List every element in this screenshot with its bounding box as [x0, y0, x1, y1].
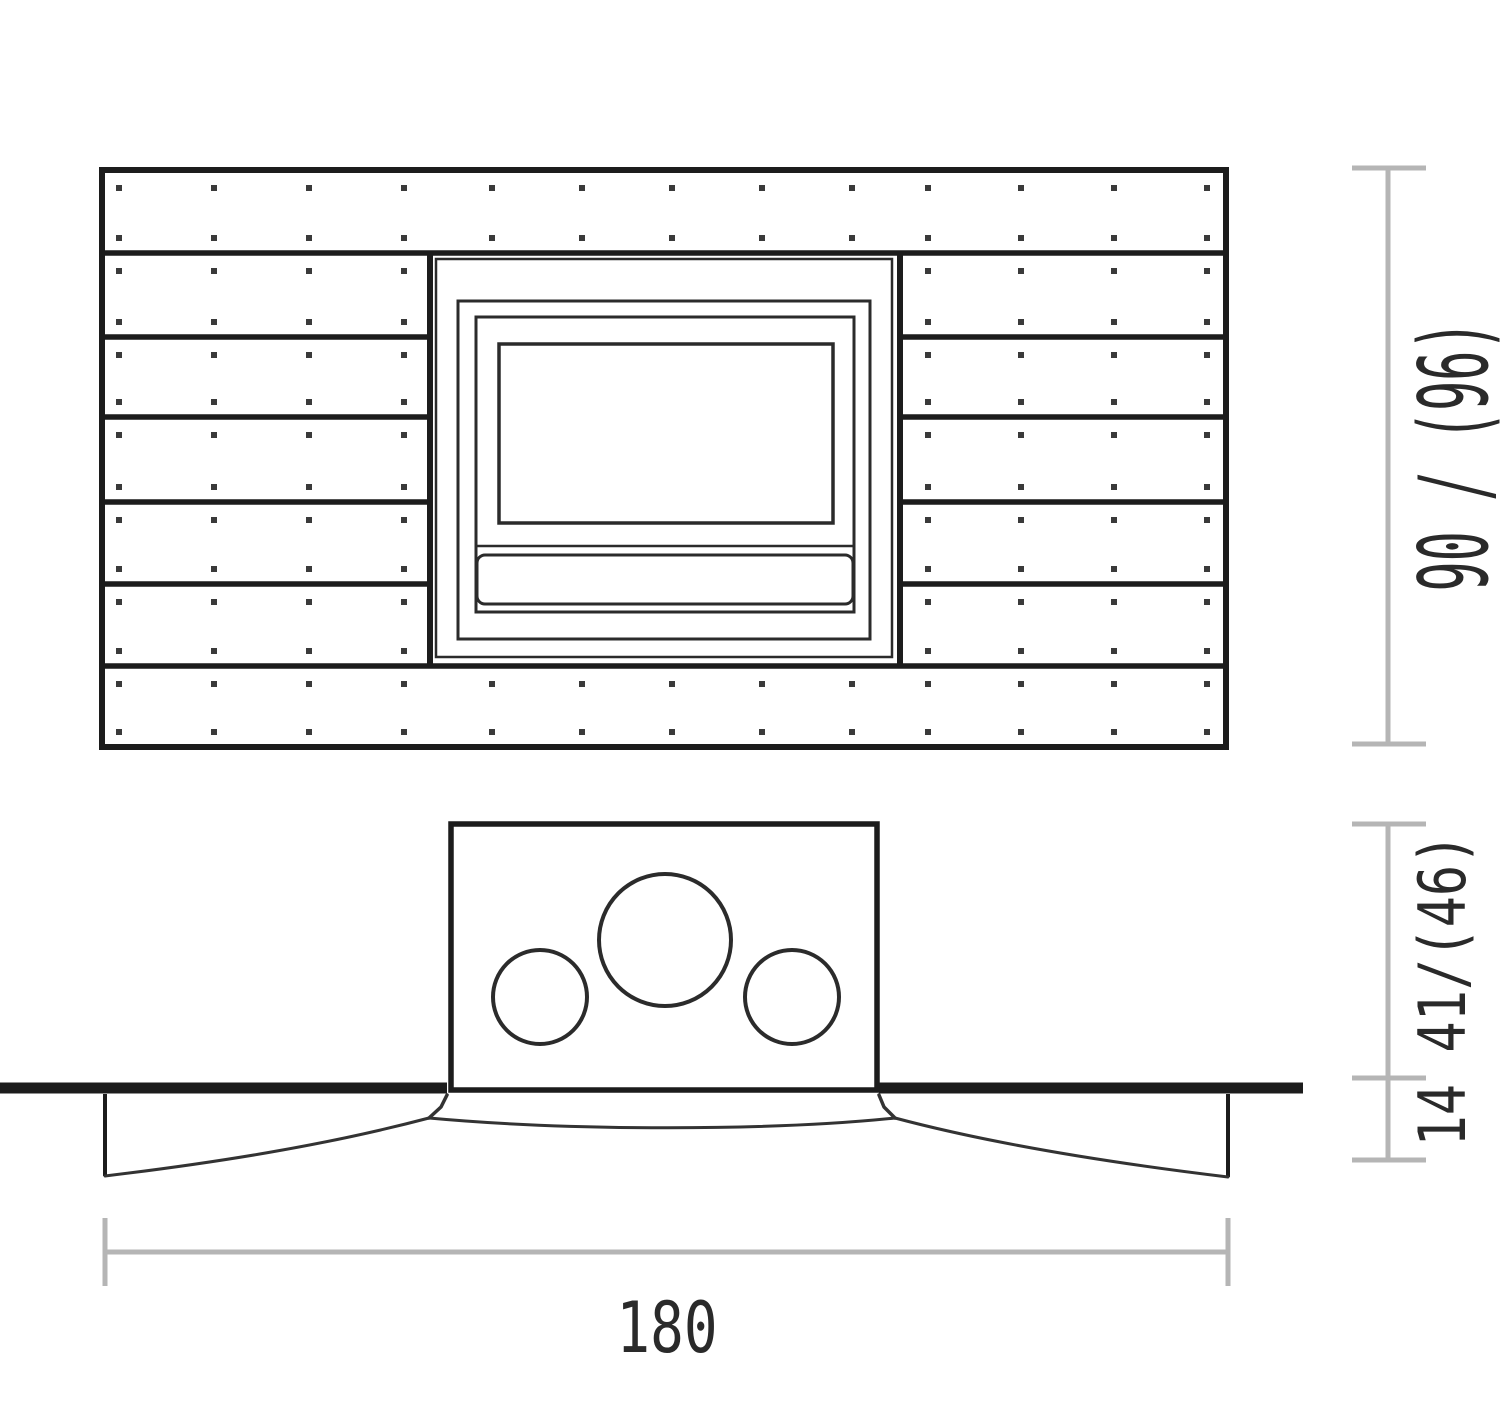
screw-dot [306, 566, 312, 572]
screw-dot [1018, 599, 1024, 605]
screw-dot [489, 235, 495, 241]
insert-inner-frame [476, 317, 854, 612]
curved-front-right [895, 1118, 1228, 1177]
screw-dot [925, 235, 931, 241]
dimension-drawing: 90 / (96) 14 41/(46) 180 [0, 0, 1500, 1427]
screw-dot [116, 352, 122, 358]
screw-dot [759, 185, 765, 191]
screw-dot [306, 432, 312, 438]
screw-dot [401, 729, 407, 735]
screw-dot [401, 648, 407, 654]
screw-dot [1204, 235, 1210, 241]
screw-dot [849, 681, 855, 687]
screw-dot [849, 729, 855, 735]
screw-dot [1111, 319, 1117, 325]
screw-dot [401, 681, 407, 687]
screw-dot [306, 517, 312, 523]
screw-dot [669, 185, 675, 191]
screw-dot [925, 185, 931, 191]
screw-dot [306, 681, 312, 687]
screw-dot [116, 185, 122, 191]
screw-dot [116, 235, 122, 241]
screw-dot [211, 681, 217, 687]
screw-dot [116, 566, 122, 572]
screw-dot [1204, 352, 1210, 358]
screw-dot [116, 399, 122, 405]
screw-dot [211, 319, 217, 325]
screw-dot [306, 648, 312, 654]
screw-dot [211, 729, 217, 735]
screw-dot [211, 399, 217, 405]
screw-dot [925, 681, 931, 687]
screw-dot [925, 352, 931, 358]
screw-dot [925, 432, 931, 438]
screw-dot [849, 185, 855, 191]
screw-dot [306, 235, 312, 241]
curved-front-left [105, 1118, 429, 1176]
screw-dot [1018, 681, 1024, 687]
screw-dot [669, 681, 675, 687]
screw-dot [1111, 648, 1117, 654]
screw-dot [211, 517, 217, 523]
screw-dot [1204, 517, 1210, 523]
screw-dot [401, 319, 407, 325]
screw-dot [1111, 235, 1117, 241]
insert-middle-frame [458, 301, 870, 639]
screw-dot [759, 729, 765, 735]
screw-dot [925, 648, 931, 654]
curved-front-center [429, 1118, 895, 1128]
screw-dot [1018, 517, 1024, 523]
screw-dot [401, 399, 407, 405]
screw-dot [211, 599, 217, 605]
screw-dot [116, 319, 122, 325]
screw-dot [211, 484, 217, 490]
screw-dot [116, 681, 122, 687]
screw-dot [401, 517, 407, 523]
screw-dot [669, 729, 675, 735]
screw-dot [306, 729, 312, 735]
screw-dot [1018, 484, 1024, 490]
screw-dot [849, 235, 855, 241]
screw-dot [1018, 352, 1024, 358]
screw-dot [759, 681, 765, 687]
screw-dot [1018, 319, 1024, 325]
screw-dot [1018, 729, 1024, 735]
screw-dot [211, 648, 217, 654]
screw-dot [1111, 599, 1117, 605]
screw-dot [116, 517, 122, 523]
screw-dot [116, 484, 122, 490]
screw-dot [489, 729, 495, 735]
screw-dot [211, 235, 217, 241]
screw-dot [211, 352, 217, 358]
screw-dot [306, 599, 312, 605]
screw-dot [211, 268, 217, 274]
screw-dot [1111, 484, 1117, 490]
screw-dot [1111, 566, 1117, 572]
screw-dot [1018, 185, 1024, 191]
screw-dot [1204, 566, 1210, 572]
screw-dot [1018, 648, 1024, 654]
screw-dot [925, 566, 931, 572]
screw-dot [306, 484, 312, 490]
screw-dot [1204, 399, 1210, 405]
screw-dot [759, 235, 765, 241]
screw-dot [116, 268, 122, 274]
depth-dimension-label: 14 41/(46) [1404, 833, 1480, 1146]
screw-dot [1111, 352, 1117, 358]
screw-dot [925, 517, 931, 523]
plan-view [0, 824, 1303, 1177]
screw-dot [1018, 399, 1024, 405]
screw-dot [116, 599, 122, 605]
screw-dot [669, 235, 675, 241]
screw-dot [306, 319, 312, 325]
screw-dot [1204, 432, 1210, 438]
screw-dot [1204, 484, 1210, 490]
screw-dot [306, 185, 312, 191]
screw-dot [211, 185, 217, 191]
technical-drawing-canvas: 90 / (96) 14 41/(46) 180 [0, 0, 1500, 1427]
screw-dot [1204, 681, 1210, 687]
height-dimension-label: 90 / (96) [1399, 321, 1500, 592]
screw-dot [116, 729, 122, 735]
screw-dot [1111, 268, 1117, 274]
screw-dot [401, 566, 407, 572]
screw-dot [1204, 599, 1210, 605]
curve-joint-mark-right [879, 1095, 895, 1118]
screw-dot [1111, 185, 1117, 191]
screw-dot [401, 185, 407, 191]
screw-dot [306, 352, 312, 358]
screw-dot [1111, 517, 1117, 523]
screw-dot [401, 268, 407, 274]
screw-dot [489, 681, 495, 687]
screw-dot [401, 432, 407, 438]
screw-dot [925, 729, 931, 735]
screw-dot [1204, 729, 1210, 735]
screw-dot [401, 235, 407, 241]
screw-dot [1018, 268, 1024, 274]
screw-dot [1018, 235, 1024, 241]
screw-dot [1204, 648, 1210, 654]
screw-dot [489, 185, 495, 191]
insert-vent-bar [477, 555, 853, 604]
screw-dot [925, 319, 931, 325]
screw-dot [1018, 432, 1024, 438]
screw-dot [1111, 432, 1117, 438]
screw-dot [401, 352, 407, 358]
screw-dot [1111, 681, 1117, 687]
screw-dot [579, 681, 585, 687]
screw-dot [306, 268, 312, 274]
screw-dot [1204, 268, 1210, 274]
width-dimension-label: 180 [616, 1287, 717, 1369]
screw-dot [579, 729, 585, 735]
curve-joint-mark-left [429, 1095, 447, 1118]
screw-dot [211, 432, 217, 438]
screw-dot [211, 566, 217, 572]
insert-outer-frame [436, 259, 892, 657]
insert-window [499, 344, 833, 523]
screw-dot [925, 599, 931, 605]
screw-dot [1111, 399, 1117, 405]
screw-dot [401, 484, 407, 490]
screw-dot [401, 599, 407, 605]
screw-dot [925, 399, 931, 405]
screw-dot [1018, 566, 1024, 572]
screw-dot [1111, 729, 1117, 735]
cladding-outline [102, 170, 1226, 747]
screw-dot [1204, 185, 1210, 191]
screw-dot [306, 399, 312, 405]
screw-dot [579, 235, 585, 241]
screw-dot [116, 648, 122, 654]
screw-dot [1204, 319, 1210, 325]
screw-dot [925, 268, 931, 274]
front-elevation-view [102, 170, 1226, 747]
screw-dot [116, 432, 122, 438]
screw-dot [925, 484, 931, 490]
screw-dot [579, 185, 585, 191]
